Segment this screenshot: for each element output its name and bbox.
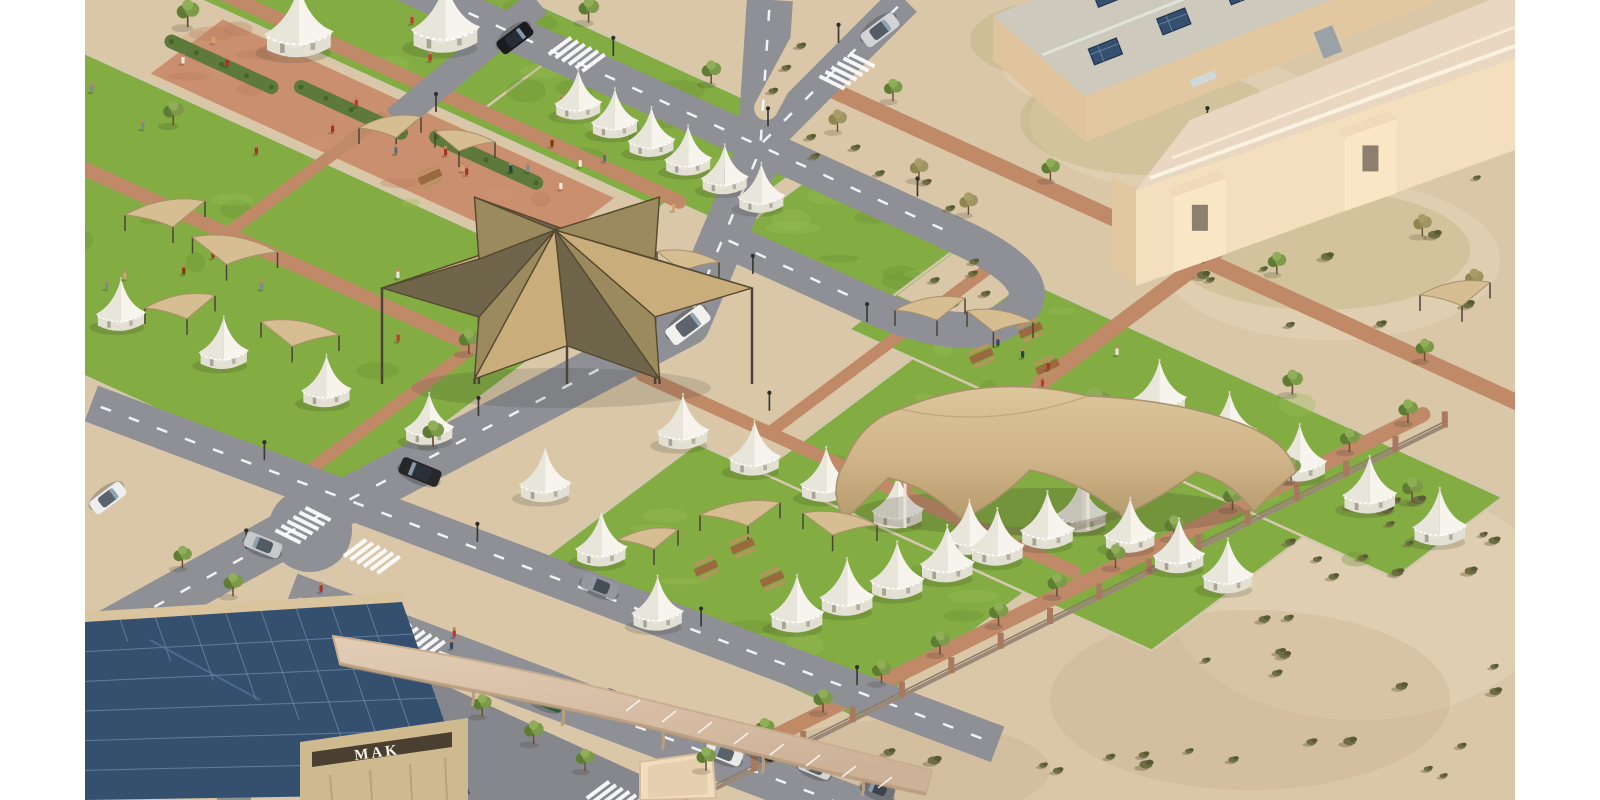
fence-pillar [1096,583,1102,599]
median-plant [194,50,199,55]
site-plan-render: MAK [0,0,1600,800]
person-shadow [1044,369,1050,371]
shrub-foliage [1349,737,1357,742]
person-shadow [408,24,414,26]
shrub-foliage [814,153,820,157]
tent-finial [753,419,755,421]
person-head [410,14,413,17]
tent-finial [1129,497,1131,499]
tree-foliage [1111,544,1121,554]
person-body [1021,351,1024,358]
tree-foliage [529,720,539,730]
person-body [559,182,562,189]
lamp-head [699,606,703,610]
tree-shadow [171,24,193,32]
tree-foliage [914,158,923,167]
person-body [182,267,185,274]
person-head [1041,376,1044,379]
shrub-foliage [1233,756,1239,760]
grass-texture [356,362,399,379]
person-head [181,54,184,57]
sand-tone-patch [1050,610,1450,790]
person-body [1115,348,1118,355]
tree-foliage [182,0,193,11]
person-shadow [447,649,453,651]
person-head [453,627,456,630]
lamp-head [611,36,615,40]
person-head [461,162,464,165]
person-shadow [391,154,397,156]
tree-shadow [219,594,238,601]
tent-finial [1298,423,1301,426]
shrub-foliage [1280,648,1286,652]
lane-dash [767,40,768,51]
person-head [396,331,399,334]
plaza-texture [531,191,551,207]
person-body [255,147,258,154]
median-plant [323,96,328,101]
shrub-foliage [1494,664,1499,667]
fence-pillar [1294,485,1300,501]
person-head [394,144,397,147]
shrub-foliage [1203,271,1211,276]
person-shadow [576,167,582,169]
lamp-head [836,23,840,27]
fence-pillar [1047,608,1053,624]
tree-foliage [1287,370,1297,380]
person-head [1115,345,1118,348]
person-shadow [179,274,185,276]
median-plant [219,62,224,67]
person-body [672,204,675,211]
shrub-foliage [1396,497,1401,500]
tree-foliage [478,694,487,703]
shrub-foliage [1290,538,1296,542]
shrub-foliage [889,748,896,752]
person-head [996,336,999,339]
person-head [260,280,263,283]
tree-shadow [984,623,1003,630]
median-plant [484,157,489,162]
median-plant [269,85,274,90]
tree-foliage [1418,214,1427,223]
plaza-texture [307,137,335,150]
tent-finial [682,393,684,395]
grass-texture [506,79,546,103]
shrub-foliage [985,291,991,295]
lamp-head [865,302,869,306]
tree-foliage [994,602,1004,612]
vestibule-door [1362,145,1378,171]
person-head [550,137,553,140]
person-body [396,271,399,278]
tree-shadow [1394,421,1413,428]
tent-finial [796,574,799,577]
person-shadow [179,63,185,65]
grass-texture [1049,307,1076,315]
person-body [444,149,447,156]
tree-shadow [1263,272,1281,278]
tree-foliage [178,546,187,555]
tent-finial [656,574,658,576]
shrub-foliage [1043,762,1048,765]
tent-finial [896,540,899,543]
plaza-texture [223,22,253,37]
person-body [319,585,322,592]
person-head [428,51,431,54]
person-body [260,283,263,290]
shrub-foliage [926,179,932,183]
person-head [182,264,185,267]
tree-foliage [428,420,439,431]
person-head [90,82,93,85]
tree-shadow [417,444,438,451]
tent-finial [1439,487,1442,490]
tree-foliage [228,573,238,583]
person-shadow [441,155,447,157]
shrub-foliage [1434,230,1442,235]
entrance-vestibule [1168,171,1226,273]
person-head [225,56,228,59]
person-body [331,125,334,132]
person-head [255,144,258,147]
tree-foliage [581,749,590,758]
tent-finial [846,557,849,560]
lamp-head [855,665,859,669]
shrub-foliage [811,134,817,138]
person-shadow [426,61,432,63]
shrub-foliage [1470,567,1477,572]
tent-finial [946,524,949,527]
shrub-foliage [879,170,885,174]
shrub-foliage [1264,615,1271,619]
tree-shadow [1411,359,1429,365]
tent-finial [1228,391,1231,394]
fence-pillar [1392,436,1398,452]
shrub-foliage [1362,554,1368,558]
person-shadow [450,637,456,639]
person-body [410,17,413,24]
person-body [394,147,397,154]
person-body [465,168,468,175]
lamp-head [262,440,266,444]
person-head [319,582,322,585]
person-head [444,146,447,149]
person-shadow [556,189,562,191]
tree-shadow [926,652,945,659]
shrub-foliage [974,258,980,262]
tree-foliage [168,100,178,110]
tree-foliage [964,192,973,201]
shrub-foliage [1284,651,1291,656]
person-shadow [138,129,144,131]
shrub-foliage [1290,322,1295,325]
tent-finial [687,124,689,126]
person-shadow [393,278,399,280]
person-shadow [208,258,214,260]
median-plant [534,180,539,185]
lamp-head [244,528,248,532]
person-head [559,179,562,182]
person-shadow [394,341,400,343]
shrub-foliage [801,43,807,47]
tree-foliage [1407,477,1417,487]
person-body [90,85,93,92]
grass-texture [660,578,703,585]
grass-texture [186,252,205,273]
tree-shadow [692,768,711,775]
tent-finial [1368,455,1371,458]
tree-shadow [824,130,842,136]
shrub-foliage [1333,573,1339,577]
right-margin [1515,0,1600,800]
shrub-foliage [1418,495,1426,500]
lamp-head [915,176,919,180]
shrub-foliage [1428,766,1433,769]
junction [268,488,352,572]
tree-shadow [1409,234,1427,240]
lane-dash [769,10,770,21]
tent-finial [600,510,602,512]
shrub-foliage [1189,748,1194,751]
person-body [550,140,553,147]
tree-foliage [1272,252,1281,261]
person-body [141,122,144,129]
tent-finial [614,87,616,89]
person-shadow [257,289,263,291]
median-plant [244,73,249,78]
tree-foliage [1470,268,1479,277]
tree-foliage [877,660,887,670]
person-head [355,97,358,100]
tree-shadow [1335,450,1354,457]
lamp-head [751,254,755,258]
shrub-foliage [1401,682,1408,687]
person-shadow [352,106,358,108]
tree-shadow [574,20,594,27]
shrub-foliage [1409,541,1414,544]
grass-texture [943,610,984,621]
person-head [1047,360,1050,363]
tent-finial [760,162,762,164]
person-body [226,59,229,66]
fence-pillar [1244,510,1250,526]
person-head [105,279,108,282]
tree-foliage [1046,158,1055,167]
person-shadow [600,161,606,163]
tree-shadow [867,681,886,688]
pavilion-shadow [411,368,711,408]
person-body [509,165,512,172]
person-body [355,100,358,107]
fence-pillar [850,706,856,722]
tent-finial [120,277,122,279]
person-shadow [209,43,215,45]
tent-finial [223,315,225,317]
grass-texture [947,590,998,603]
person-head [331,122,334,125]
tree-shadow [697,82,716,89]
fence-pillar [1195,534,1201,550]
median-plant [298,85,303,90]
person-shadow [462,175,468,177]
person-shadow [1018,358,1024,360]
person-head [509,162,512,165]
person-body [996,339,999,346]
tent-finial [544,446,546,448]
person-shadow [1113,355,1119,357]
shrub-foliage [934,277,940,281]
shrub-foliage [786,65,792,69]
person-body [212,36,215,43]
person-shadow [102,289,108,291]
shrub-foliage [1397,568,1404,573]
tent-finial [968,499,970,501]
shrub-foliage [1143,751,1149,755]
fence-pillar [899,682,905,698]
person-shadow [506,172,512,174]
tree-shadow [809,710,828,717]
tree-shadow [469,714,487,720]
shrub-foliage [1311,738,1317,742]
tree-shadow [1397,500,1417,507]
plaza-texture [167,72,210,80]
lamp-head [1205,106,1209,110]
shrub-foliage [934,756,942,761]
shrub-foliage [1483,532,1488,535]
person-head [1021,348,1024,351]
person-body [450,642,453,649]
tree-foliage [706,60,716,70]
tree-foliage [701,747,711,757]
plaza-texture [380,178,419,188]
tree-shadow [880,99,898,105]
shrub-foliage [773,88,779,92]
tree-shadow [169,566,187,572]
shrub-foliage [855,145,861,149]
tent-finial [428,392,430,394]
tree-foliage [935,631,945,641]
person-head [465,165,468,168]
person-body [429,54,432,61]
grass-texture [766,222,821,234]
shrub-foliage [1381,320,1387,324]
shrub-foliage [1057,767,1063,771]
person-body [181,57,184,64]
tent-finial [825,446,827,448]
person-head [603,152,606,155]
tree-foliage [1169,515,1179,525]
grass-texture [642,509,687,523]
person-shadow [458,171,464,173]
tree-shadow [1101,565,1120,572]
grass-texture [402,198,420,207]
tree-foliage [1052,573,1062,583]
shrub-foliage [1326,252,1334,257]
person-shadow [223,66,229,68]
shrub-foliage [1288,615,1294,619]
fence-pillar [1343,461,1349,477]
shrub-foliage [1276,670,1282,674]
left-margin [0,0,85,800]
shrub-foliage [972,270,978,274]
lane-dash [763,100,764,111]
person-body [397,334,400,341]
tent-finial [1046,490,1049,493]
tent-finial [996,507,999,510]
person-body [526,165,529,172]
lamp-head [475,522,479,526]
person-shadow [87,92,93,94]
tree-shadow [1037,178,1055,184]
lane-dash [761,130,762,141]
person-head [212,33,215,36]
fence-pillar [998,633,1004,649]
shrub-foliage [1494,537,1501,541]
shrub-foliage [1110,754,1116,758]
tent-finial [724,143,726,145]
person-shadow [523,172,529,174]
person-shadow [317,592,323,594]
tent-finial [325,354,327,356]
tent-finial [1158,359,1161,362]
lamp-head [476,396,480,400]
grass-texture [211,194,253,206]
shrub-foliage [1317,556,1322,559]
person-body [123,272,126,279]
tree-shadow [1277,392,1297,399]
tree-foliage [464,329,474,339]
person-shadow [993,346,999,348]
person-body [453,630,456,637]
person-head [396,268,399,271]
tree-foliage [833,109,842,118]
person-body [105,282,108,289]
fence-pillar [1442,411,1448,427]
person-head [579,157,582,160]
pavilion-apex [553,228,557,232]
lamp-head [767,391,771,395]
shrub-foliage [1476,175,1481,178]
person-head [672,201,675,204]
tree-shadow [572,769,590,775]
person-shadow [669,210,675,212]
person-body [461,165,464,172]
lamp-head [766,106,770,110]
person-body [1041,379,1044,386]
shrub-foliage [1206,657,1211,660]
tree-shadow [454,351,474,358]
architectural-rendering: MAK [0,0,1600,800]
shrub-foliage [1443,773,1448,776]
shrub-foliage [1210,277,1215,280]
vestibule-door [1192,205,1208,231]
person-shadow [328,132,334,134]
tree-foliage [1420,339,1429,348]
person-body [1047,363,1050,370]
tree-foliage [818,689,828,699]
person-head [450,639,453,642]
median-plant [169,39,174,44]
person-head [141,119,144,122]
shrub-foliage [1145,760,1153,765]
tree-foliage [1345,428,1355,438]
shrub-foliage [950,205,956,209]
person-head [526,162,529,165]
person-shadow [548,147,554,149]
shrub-foliage [1461,743,1466,747]
tent-finial [1227,537,1229,539]
